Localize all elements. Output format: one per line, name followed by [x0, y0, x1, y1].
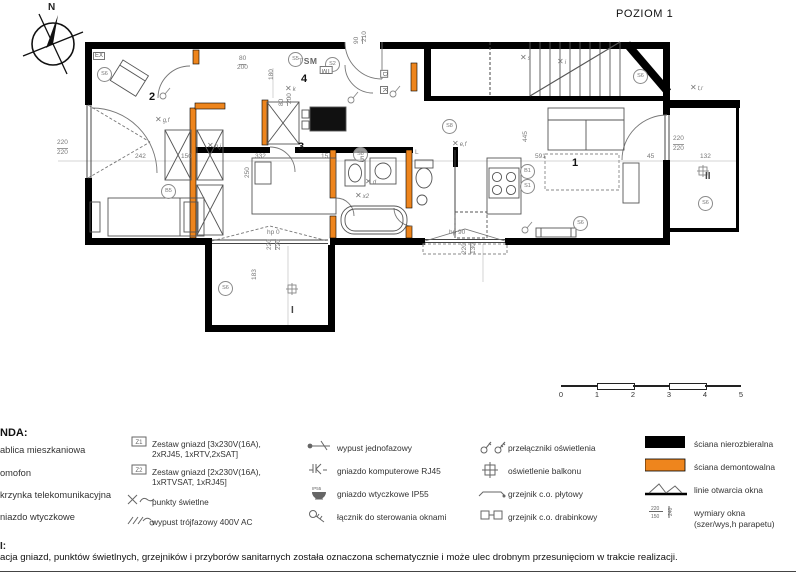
light-point-symbol: ✕i — [557, 58, 566, 66]
dimension-label: 45 — [647, 154, 654, 161]
scale-tick-label: 1 — [595, 390, 599, 399]
balcony-light-icon — [477, 462, 503, 480]
legend-item-label: ablica mieszkaniowa — [0, 445, 85, 457]
notes-heading: I: — [0, 541, 6, 552]
scale-segment — [597, 383, 635, 390]
scale-bar: 012345 — [558, 376, 758, 402]
room-label-i: I — [291, 306, 294, 316]
symbol-s6: S6 — [97, 67, 112, 82]
page-title: POZIOM 1 — [616, 8, 673, 20]
dimension-label: 220 — [57, 140, 68, 149]
legend-item-label: gniazdo wtyczkowe IP55 — [337, 489, 429, 500]
dimension-label: 183 — [252, 269, 259, 280]
ladder-radiator-icon — [477, 508, 507, 524]
dimension-label: L — [415, 150, 419, 157]
legend-title: NDA: — [0, 427, 28, 439]
scale-tick-label: 5 — [739, 390, 743, 399]
svg-text:Z1: Z1 — [135, 440, 143, 446]
legend-item-label: niazdo wtyczkowe — [0, 512, 75, 524]
svg-text:240: 240 — [668, 507, 674, 516]
room-label-3: 3 — [298, 142, 304, 153]
light-point-symbol: ✕h,j — [207, 142, 221, 150]
light-point-symbol: ✕x2 — [355, 192, 369, 200]
room-label-2: 2 — [149, 92, 155, 103]
legend-item-label: wypust trójfazowy 400V AC — [152, 517, 253, 527]
window-control-icon — [306, 508, 332, 526]
dimension-label: 250 — [245, 167, 252, 178]
window-open-icon — [645, 481, 689, 499]
plan-annotations: 8020090210802001802202202421503321525044… — [55, 30, 745, 365]
floor-plan: 8020090210802001802202202421503321525044… — [55, 30, 745, 365]
box-label-ex: EX — [93, 52, 105, 60]
dimension-label: 180 — [269, 69, 276, 80]
scale-tick-label: 3 — [667, 390, 671, 399]
ip55-icon: IP55 — [306, 485, 332, 503]
dimension-label: 220 — [673, 136, 684, 145]
legend-item-label: punkty świetlne — [152, 497, 209, 507]
switches-icon — [477, 439, 509, 457]
svg-text:IP55: IP55 — [312, 486, 322, 491]
legend-item-label: gniazdo komputerowe RJ45 — [337, 466, 441, 477]
symbol-s6: S6 — [633, 69, 648, 84]
dimension-label: hp 0 — [267, 230, 280, 237]
symbol-s8: S8 — [353, 147, 368, 162]
compass-north-label: N — [48, 2, 55, 13]
light-point-symbol: ✕d — [365, 178, 376, 186]
dimension-label: 332 — [255, 154, 266, 161]
legend: NDA: ablica mieszkaniowaomofonkrzynka te… — [0, 425, 796, 543]
socket-z-icon: Z2 — [126, 463, 152, 479]
legend-item-label: linie otwarcia okna — [694, 485, 763, 496]
symbol-s5: S5 — [288, 52, 303, 67]
dimension-label: 591 — [535, 154, 546, 161]
symbol-s6: S6 — [218, 281, 233, 296]
svg-text:Z2: Z2 — [135, 468, 143, 474]
scale-tick-label: 0 — [559, 390, 563, 399]
box-label-k: K — [380, 86, 388, 94]
dimension-label: 132 — [700, 154, 711, 161]
dimension-label: 220 — [276, 239, 283, 250]
light-point-symbol: ✕k — [285, 85, 296, 93]
legend-item-label: wypust jednofazowy — [337, 443, 412, 454]
room-label-4: 4 — [301, 74, 307, 85]
legend-item-label: łącznik do sterowania oknami — [337, 512, 446, 523]
dimension-label: 242 — [135, 154, 146, 161]
legend-item-label: grzejnik c.o. drabinkowy — [508, 512, 597, 523]
dimension-label: 200 — [237, 65, 248, 72]
scale-segment — [633, 385, 669, 387]
symbol-b1: B1 — [520, 164, 535, 179]
socket-z-icon: Z1 — [126, 435, 152, 451]
rj45-icon — [306, 462, 332, 478]
scale-tick-label: 4 — [703, 390, 707, 399]
window-dims-icon: 220150240 — [645, 504, 689, 524]
legend-item-label: krzynka telekomunikacyjna — [0, 490, 111, 502]
symbol-s1: S1 — [520, 179, 535, 194]
light-point-symbol: ✕t,r — [690, 84, 703, 92]
light-point-symbol: ✕e,f — [452, 140, 466, 148]
notes-body: acja gniazd, punktów świetlnych, grzejni… — [0, 552, 780, 563]
legend-item-label: wymiary okna (szer/wys,h parapetu) — [694, 508, 775, 529]
dimension-label: 220 — [57, 150, 68, 157]
legend-item-label: ściana demontowalna — [694, 462, 775, 473]
box-label-tm: TM — [320, 66, 333, 74]
legend-item-label: Zestaw gniazd [3x230V(16A), 2xRJ45, 1xRT… — [152, 439, 261, 460]
symbol-s8: S8 — [442, 119, 457, 134]
symbol-s6: S6 — [573, 216, 588, 231]
legend-item-label: Zestaw gniazd [2x230V(16A), 1xRTVSAT, 1x… — [152, 467, 261, 488]
room-label-ii: II — [705, 172, 711, 182]
wall-orange-icon — [645, 458, 687, 474]
dimension-label: 130 — [471, 243, 478, 254]
title-block-rule — [0, 571, 796, 572]
dimension-label: 15 — [321, 154, 328, 161]
legend-item-label: przełączniki oświetlenia — [508, 443, 596, 454]
wall-black-icon — [645, 435, 687, 451]
floor-plan-page: { "title": "POZIOM 1", "compass": { "lab… — [0, 0, 796, 579]
dimension-label: 210 — [362, 31, 369, 42]
dimension-label: 150 — [181, 154, 192, 161]
legend-item-label: ściana nierozbieralna — [694, 439, 773, 450]
light-point-symbol: ✕s — [520, 54, 531, 62]
light-point-symbol: ✕g,f — [155, 116, 169, 124]
panel-radiator-icon — [477, 485, 507, 501]
dimension-label: 220 — [673, 146, 684, 153]
legend-item-label: omofon — [0, 468, 31, 480]
legend-item-label: grzejnik c.o. płytowy — [508, 489, 583, 500]
symbol-s6: S6 — [698, 196, 713, 211]
room-label-1: 1 — [572, 158, 578, 169]
dimension-label: 200 — [287, 93, 294, 104]
single-phase-icon — [306, 439, 336, 455]
dimension-label: 445 — [523, 131, 530, 142]
symbol-b5: B5 — [161, 184, 176, 199]
box-label-d: D — [380, 70, 388, 78]
dimension-label: hp 90 — [449, 230, 465, 237]
scale-tick-label: 2 — [631, 390, 635, 399]
legend-item-label: oświetlenie balkonu — [508, 466, 581, 477]
scale-segment — [705, 385, 741, 387]
scale-segment — [669, 383, 707, 390]
scale-segment — [561, 385, 597, 387]
svg-text:150: 150 — [651, 514, 660, 520]
